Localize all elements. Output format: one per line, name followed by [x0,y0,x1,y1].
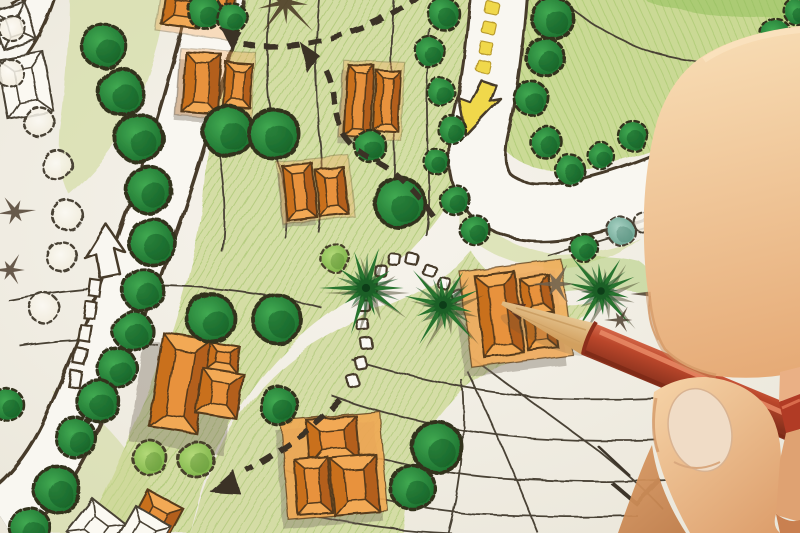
tree-canopy-shade [144,452,163,471]
roof-ridge [216,351,232,364]
tree-canopy-shade [565,165,582,182]
tree-canopy-shade [126,324,148,346]
stepping-stone [406,253,419,266]
tree-canopy-shade [203,310,229,336]
tree-canopy-shade [470,225,487,242]
tree-canopy-shade [272,400,293,421]
tree-symbol [113,311,153,351]
tree-canopy-shade [2,400,20,418]
house-large [274,411,389,529]
tree-outline-symbol [24,107,54,137]
stepping-stone [355,357,368,370]
tree-outline-symbol [47,242,77,272]
tree-canopy-shade [69,431,91,453]
tree-canopy-shade [546,11,569,34]
tree-symbol [260,387,298,425]
roof-ridge [232,71,245,99]
dash-marker [68,370,82,388]
tree-outline-symbol [29,293,59,323]
tree-canopy-shade [144,234,169,259]
tree-canopy-shade [91,394,114,417]
palm-center [597,287,605,295]
tree-canopy-shade [428,439,456,467]
tree-symbol [115,114,163,162]
tree-symbol [460,215,490,245]
dash-marker [484,1,499,15]
tree-symbol [253,295,301,343]
tree-symbol [526,38,564,76]
roof-ridge [210,382,230,405]
tree-canopy-shade [596,152,610,166]
tree-canopy-shade [265,126,293,154]
tree-canopy-shade [96,39,120,63]
tree-outline-symbol [42,150,72,180]
tree-canopy-shade [136,283,159,306]
palm-center [439,301,447,309]
tree-symbol [98,69,144,115]
tree-canopy-shade [616,226,631,241]
roof-ridge [305,467,322,504]
tree-canopy-shade [141,182,166,207]
tree-symbol [34,466,80,512]
tree-symbol [412,422,462,472]
tree-symbol [122,269,164,311]
tree-canopy [0,16,24,40]
roof-ridge [381,78,393,123]
dash-marker [88,279,101,296]
tree-symbol [82,24,126,68]
roof-ridge [193,64,210,103]
tree-symbol [415,37,445,67]
tree-symbol [77,380,119,422]
tree-canopy-shade [540,137,558,155]
tree-symbol [126,167,172,213]
tree-canopy-shade [269,311,295,337]
dash-marker [83,301,96,318]
dash-marker [481,21,496,35]
tree-symbol [428,0,460,30]
stepping-stone [422,263,435,276]
tree-symbol [203,106,253,156]
tree-symbol [129,219,175,265]
tree-canopy-shade [330,253,345,268]
tree-canopy-shade [227,13,244,30]
tree-symbol [0,389,24,421]
landscape-plan-photo [0,0,800,533]
house [373,70,401,131]
tree-canopy-shade [525,92,544,111]
tree-symbol [618,121,648,151]
tree-symbol [187,294,235,342]
tree-canopy-shade [425,47,442,64]
dash-marker [78,324,91,342]
tree-symbol [249,109,299,159]
dash-marker [478,41,493,55]
tree-canopy-shade [628,131,645,148]
tree-canopy-shade [438,9,456,27]
house [315,167,349,217]
tree-canopy-shade [405,481,429,505]
roof-ridge [344,469,365,501]
tree-symbol [532,0,574,39]
tree-canopy-shade [538,51,559,72]
tree-canopy-shade [450,195,467,212]
tree-symbol [56,418,96,458]
roof-ridge [352,72,365,129]
tree-canopy-shade [113,84,138,109]
tree-symbol [514,81,548,115]
tree-canopy-shade [219,123,247,151]
tree-symbol [555,155,585,185]
roof-ridge [529,285,543,304]
tree-symbol [375,178,425,228]
tree-canopy-shade [110,361,132,383]
dash-marker [475,59,490,73]
stepping-stone [345,373,358,386]
tree-symbol [391,466,435,510]
tree-outline-symbol [0,59,24,87]
stepping-stone [437,276,451,290]
tree-canopy-shade [199,6,218,25]
tree-symbol [10,508,50,533]
tree-canopy-shade [49,481,74,506]
tree-canopy-shade [391,195,419,223]
tree-canopy-shade [432,158,446,172]
tree-symbol [440,185,470,215]
tree-canopy-shade [436,87,451,102]
tree-symbol [133,441,167,475]
tree-canopy-shade [579,243,594,258]
palm-center [362,284,370,292]
roof-ridge [320,430,345,450]
tree-outline-symbol [52,200,82,230]
tree-canopy-shade [447,125,462,140]
dash-marker [73,347,87,365]
stepping-stone [389,254,401,266]
tree-canopy-shade [131,130,157,156]
stepping-stone [361,338,373,350]
site-plan-svg [0,0,800,533]
tree-canopy-shade [190,453,210,473]
roof-ridge [325,177,340,208]
house [223,62,253,108]
